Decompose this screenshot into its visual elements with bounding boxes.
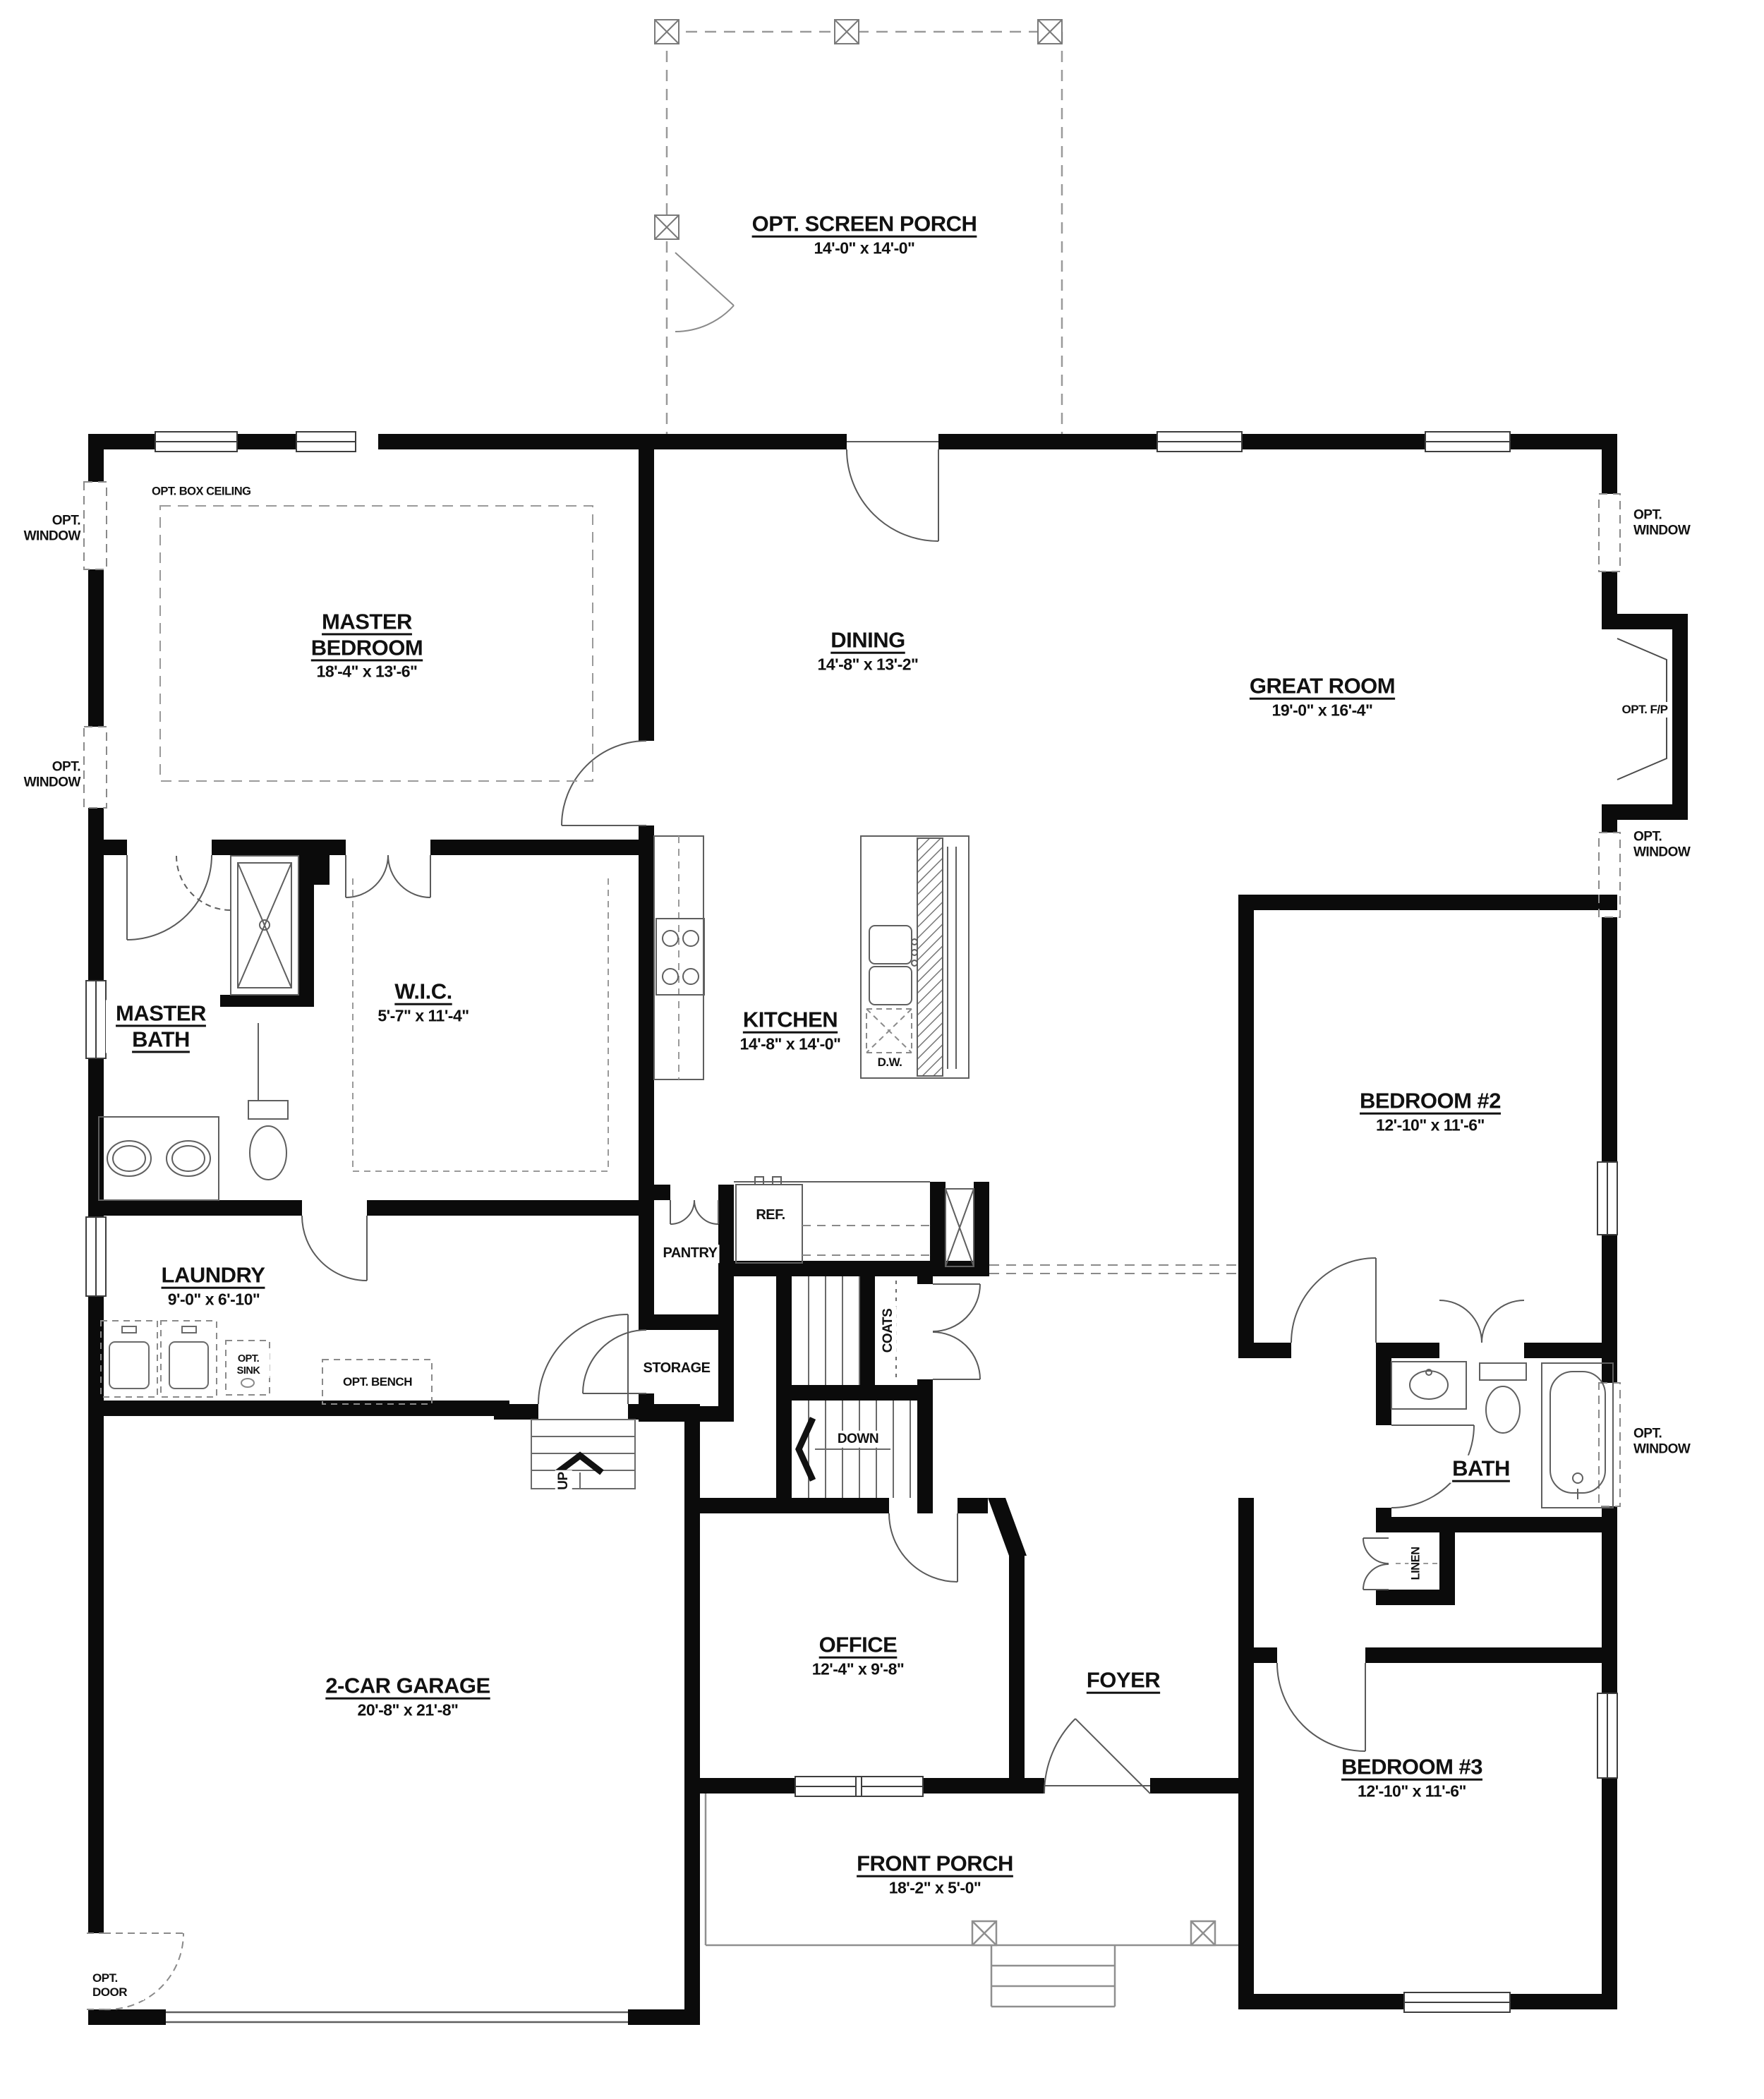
room-label-front-porch: FRONT PORCH <box>854 1851 1015 1878</box>
annotation-opt-sink: OPT. SINK <box>227 1353 270 1378</box>
room-label-kitchen: KITCHEN <box>741 1007 840 1034</box>
room-label-coats: COATS <box>880 1307 897 1355</box>
room-dims-laundry: 9'-0" x 6'-10" <box>166 1289 262 1309</box>
room-label-master-bath: MASTER BATH <box>106 1000 216 1053</box>
room-label-screen-porch: OPT. SCREEN PORCH <box>750 211 979 238</box>
floor-plan: OPT. SCREEN PORCH 14'-0" x 14'-0" OPT. B… <box>0 0 1764 2099</box>
annotation-up: UP <box>555 1470 572 1492</box>
porch-posts <box>655 20 1062 239</box>
room-dims-wic: 5'-7" x 11'-4" <box>375 1005 471 1026</box>
room-label-laundry: LAUNDRY <box>159 1262 267 1290</box>
floor-plan-drawing <box>0 0 1764 2099</box>
annotation-opt-bench: OPT. BENCH <box>341 1374 414 1390</box>
annotation-opt-window-left-2: OPT. WINDOW <box>1 759 83 792</box>
room-label-office: OFFICE <box>817 1632 900 1659</box>
room-label-dining: DINING <box>828 627 907 655</box>
annotation-opt-window-right-2: OPT. WINDOW <box>1631 829 1713 862</box>
annotation-dw: D.W. <box>876 1055 905 1070</box>
front-porch-outline <box>706 1793 1238 2007</box>
room-label-pantry: PANTRY <box>661 1245 720 1263</box>
porch-screen-door <box>675 253 734 332</box>
annotation-opt-door: OPT. DOOR <box>90 1971 144 2000</box>
room-dims-great-room: 19'-0" x 16'-4" <box>1270 700 1375 720</box>
room-dims-screen-porch: 14'-0" x 14'-0" <box>812 238 917 258</box>
room-dims-dining: 14'-8" x 13'-2" <box>816 654 921 675</box>
down-arrow <box>799 1418 813 1480</box>
room-label-foyer: FOYER <box>1085 1667 1162 1695</box>
annotation-down: DOWN <box>835 1431 881 1448</box>
room-dims-kitchen: 14'-8" x 14'-0" <box>738 1034 843 1054</box>
room-label-great-room: GREAT ROOM <box>1248 673 1397 701</box>
room-label-bedroom-2: BEDROOM #2 <box>1358 1088 1503 1115</box>
room-label-master-bedroom: MASTER BEDROOM <box>294 608 440 661</box>
room-label-bath: BATH <box>1450 1456 1512 1483</box>
annotation-opt-window-right-1: OPT. WINDOW <box>1631 507 1713 540</box>
room-dims-garage: 20'-8" x 21'-8" <box>356 1700 461 1720</box>
room-dims-master-bedroom: 18'-4" x 13'-6" <box>315 661 420 682</box>
annotation-opt-window-left-1: OPT. WINDOW <box>1 513 83 546</box>
hall-bath-fixtures <box>1391 1362 1613 1508</box>
room-dims-bedroom-3: 12'-10" x 11'-6" <box>1355 1781 1468 1801</box>
room-label-wic: W.I.C. <box>392 979 454 1006</box>
room-label-bedroom-3: BEDROOM #3 <box>1339 1754 1485 1782</box>
annotation-opt-window-right-3: OPT. WINDOW <box>1631 1426 1713 1459</box>
room-dims-bedroom-2: 12'-10" x 11'-6" <box>1374 1115 1487 1135</box>
room-label-garage: 2-CAR GARAGE <box>323 1673 492 1700</box>
room-dims-front-porch: 18'-2" x 5'-0" <box>887 1877 984 1898</box>
annotation-opt-box-ceiling: OPT. BOX CEILING <box>150 484 253 499</box>
room-label-linen: LINEN <box>1408 1545 1423 1583</box>
garage-door <box>166 2012 628 2022</box>
room-dims-office: 12'-4" x 9'-8" <box>810 1659 907 1679</box>
room-label-storage: STORAGE <box>641 1360 712 1378</box>
case-opening <box>989 1265 1238 1274</box>
annotation-opt-fp: OPT. F/P <box>1620 702 1670 718</box>
annotation-ref: REF. <box>754 1206 787 1225</box>
